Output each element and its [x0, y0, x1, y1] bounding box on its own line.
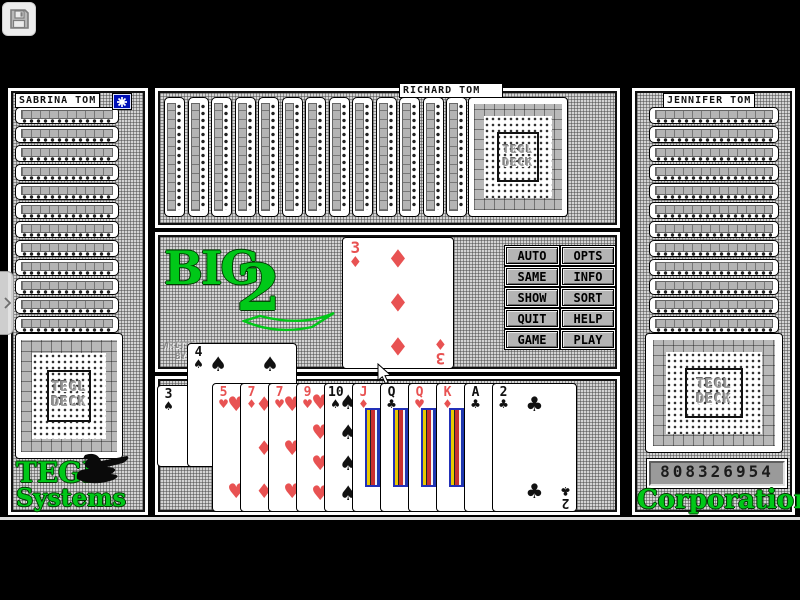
hidden-card — [15, 221, 119, 238]
hidden-card — [649, 164, 779, 181]
swan-swoosh-icon — [242, 303, 338, 333]
deck-card-right: TEGLDECK — [645, 333, 783, 453]
hand-card-2-club[interactable]: 2♣2♣♣♣ — [492, 383, 577, 512]
player-name-top: RICHARD TOM — [399, 83, 503, 98]
player-name-left: SABRINA TOM — [15, 93, 100, 108]
hidden-card — [649, 202, 779, 219]
hidden-card — [282, 97, 303, 217]
chevron-right-icon — [3, 297, 11, 309]
deck-card-left: TEGLDECK — [15, 333, 123, 459]
save-button[interactable] — [2, 2, 36, 36]
hidden-card — [15, 297, 119, 314]
game-screen: SABRINA TOM TEGLDECK TEGL Systems — [0, 0, 800, 600]
played-card-3-diamond: 3♦3♦♦♦♦ — [342, 237, 454, 369]
action-button-game[interactable]: GAME — [506, 331, 558, 348]
panel-player-right: JENNIFER TOM TEGLDECK 808326954 Corporat… — [632, 88, 795, 515]
action-button-auto[interactable]: AUTO — [506, 247, 558, 264]
mouse-cursor-icon — [377, 363, 392, 385]
action-button-help[interactable]: HELP — [562, 310, 614, 327]
hidden-card — [649, 183, 779, 200]
hidden-card — [15, 164, 119, 181]
hidden-card — [649, 221, 779, 238]
hidden-card — [15, 202, 119, 219]
hidden-card — [423, 97, 444, 217]
hidden-card — [15, 107, 119, 124]
hidden-card — [352, 97, 373, 217]
hidden-card — [649, 126, 779, 143]
hidden-card — [15, 316, 119, 333]
hidden-card — [211, 97, 232, 217]
deck-card-top: TEGLDECK — [468, 97, 568, 217]
tegl-systems-text: Systems — [16, 483, 126, 512]
action-button-grid: AUTOOPTSSAMEINFOSHOWSORTQUITHELPGAMEPLAY — [506, 247, 614, 348]
hidden-card — [649, 259, 779, 276]
hidden-card — [376, 97, 397, 217]
corporation-text: Corporation — [637, 485, 790, 515]
action-button-play[interactable]: PLAY — [562, 331, 614, 348]
star-icon — [116, 96, 128, 108]
hidden-card — [649, 107, 779, 124]
turn-indicator-button[interactable] — [112, 93, 132, 110]
score-display: 808326954 — [649, 461, 785, 486]
player-name-right: JENNIFER TOM — [663, 93, 755, 108]
action-button-quit[interactable]: QUIT — [506, 310, 558, 327]
hidden-card — [305, 97, 326, 217]
floppy-disk-icon — [8, 8, 30, 30]
hidden-card — [188, 97, 209, 217]
hidden-card — [649, 240, 779, 257]
hidden-card — [15, 126, 119, 143]
hidden-card — [649, 316, 779, 333]
action-button-same[interactable]: SAME — [506, 268, 558, 285]
hidden-card — [649, 297, 779, 314]
bottom-divider — [0, 517, 800, 520]
hidden-card — [649, 278, 779, 295]
hidden-card — [15, 259, 119, 276]
hidden-card — [15, 145, 119, 162]
hidden-card — [164, 97, 185, 217]
action-button-sort[interactable]: SORT — [562, 289, 614, 306]
hidden-card — [329, 97, 350, 217]
hidden-card — [15, 183, 119, 200]
hidden-card — [649, 145, 779, 162]
action-button-opts[interactable]: OPTS — [562, 247, 614, 264]
hidden-card — [15, 240, 119, 257]
drawer-tab[interactable] — [0, 271, 14, 335]
hidden-card — [235, 97, 256, 217]
hidden-card — [446, 97, 467, 217]
hidden-card — [15, 278, 119, 295]
panel-player-left: SABRINA TOM TEGLDECK TEGL Systems — [8, 88, 148, 515]
hidden-card — [258, 97, 279, 217]
action-button-show[interactable]: SHOW — [506, 289, 558, 306]
hidden-card — [399, 97, 420, 217]
panel-player-top: TEGLDECK — [155, 88, 620, 228]
action-button-info[interactable]: INFO — [562, 268, 614, 285]
